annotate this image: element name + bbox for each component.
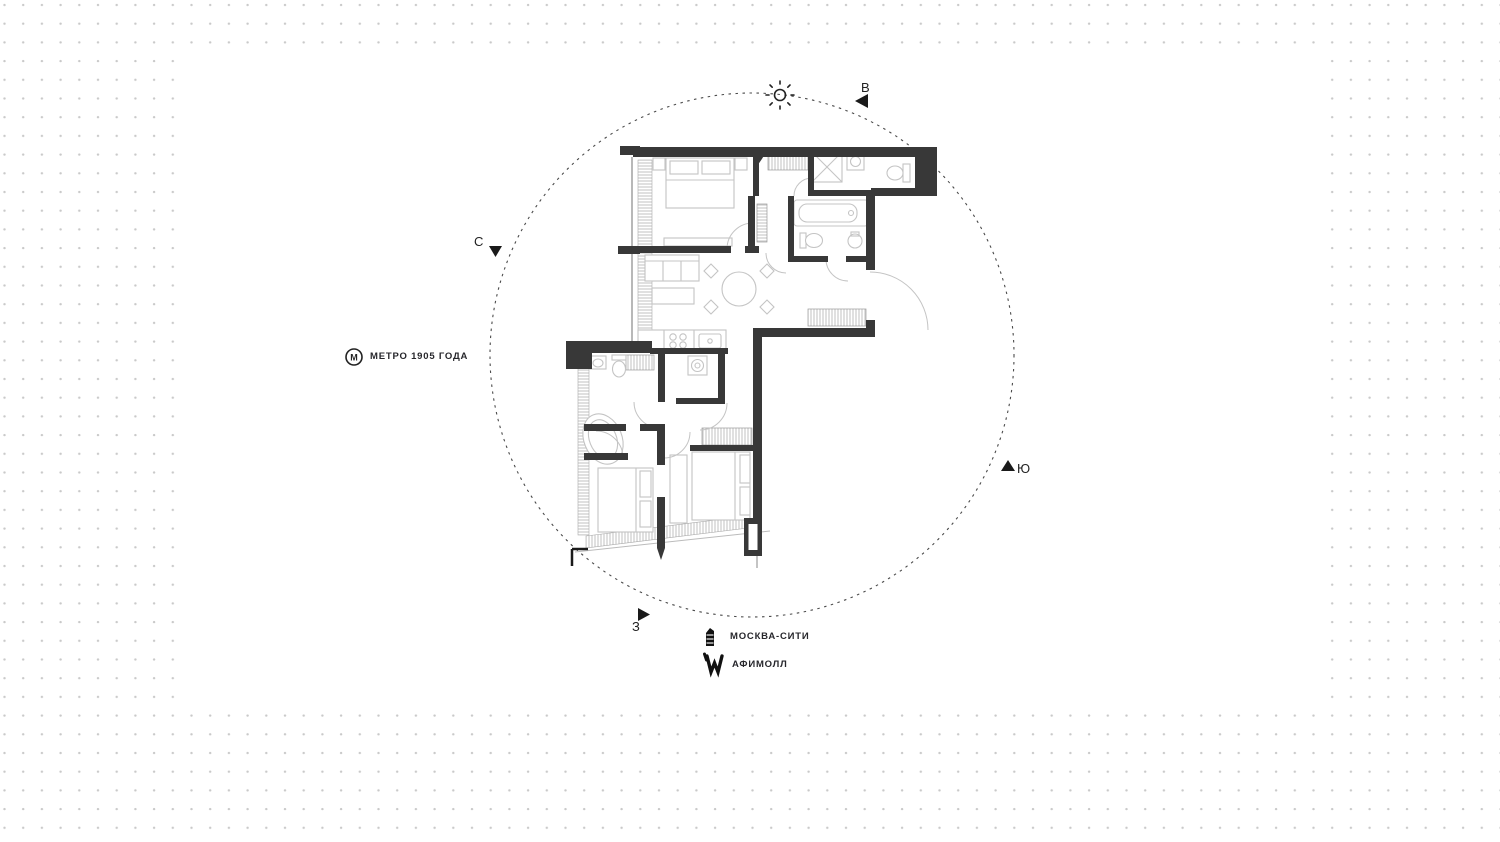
compass-north-label: С bbox=[474, 234, 483, 249]
moscow-city-label: МОСКВА-СИТИ bbox=[730, 631, 810, 642]
compass-west-label: З bbox=[632, 619, 640, 634]
metro-badge-letter: М bbox=[350, 353, 358, 363]
afimall-label: АФИМОЛЛ bbox=[732, 659, 788, 670]
compass-east-label: В bbox=[861, 80, 870, 95]
dotted-background bbox=[0, 0, 1500, 842]
floorplan-canvas: М bbox=[0, 0, 1500, 842]
metro-station-label: МЕТРО 1905 ГОДА bbox=[370, 351, 468, 362]
real-estate-floorplan-page: М С В Ю З МЕТРО 1905 ГОДА МОСКВА-СИТИ АФ… bbox=[0, 0, 1500, 842]
compass-south-label: Ю bbox=[1017, 461, 1030, 476]
